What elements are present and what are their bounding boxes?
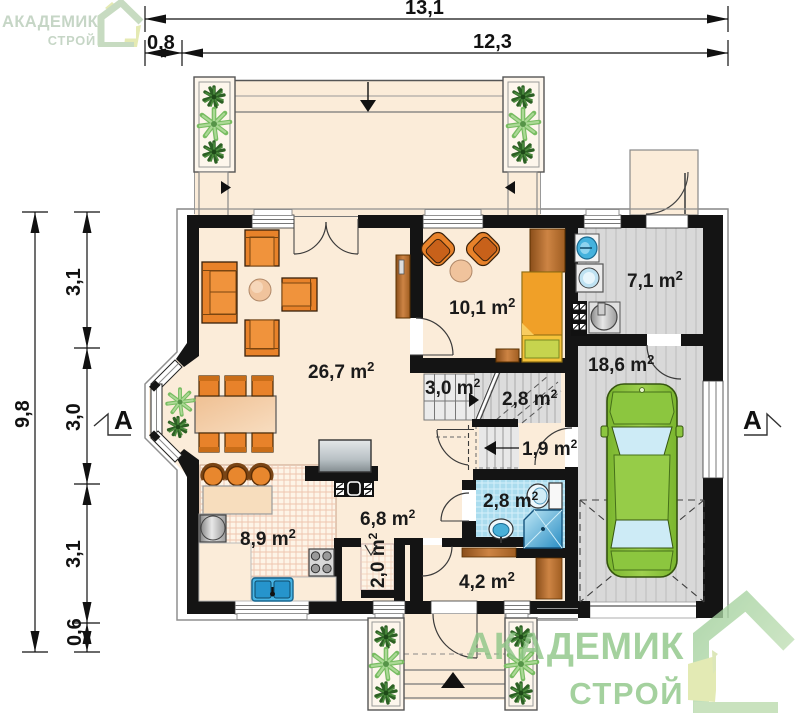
svg-text:6,8 m2: 6,8 m2 <box>360 507 416 530</box>
svg-text:0,6: 0,6 <box>64 618 86 646</box>
svg-text:СТРОЙ: СТРОЙ <box>48 33 96 48</box>
svg-text:3,0: 3,0 <box>63 403 85 431</box>
svg-text:3,1: 3,1 <box>63 540 85 568</box>
svg-text:26,7 m2: 26,7 m2 <box>308 359 374 383</box>
svg-text:10,1 m2: 10,1 m2 <box>449 295 515 319</box>
svg-text:4,2 m2: 4,2 m2 <box>459 569 515 593</box>
svg-text:9,8: 9,8 <box>12 400 34 428</box>
svg-text:A: A <box>743 405 762 435</box>
svg-text:13,1: 13,1 <box>405 0 444 19</box>
svg-text:АКАДЕМИК: АКАДЕМИК <box>2 13 99 31</box>
svg-text:2,8 m2: 2,8 m2 <box>483 489 539 512</box>
svg-text:7,1 m2: 7,1 m2 <box>627 268 683 292</box>
svg-text:0,8: 0,8 <box>147 32 175 54</box>
svg-text:2,8 m2: 2,8 m2 <box>502 387 558 410</box>
svg-text:8,9 m2: 8,9 m2 <box>240 526 296 550</box>
svg-text:3,0 m2: 3,0 m2 <box>425 376 481 399</box>
svg-text:1,9 m2: 1,9 m2 <box>522 437 578 460</box>
svg-text:A: A <box>114 405 133 435</box>
svg-text:3,1: 3,1 <box>63 268 85 296</box>
svg-text:12,3: 12,3 <box>473 31 512 53</box>
svg-text:2,0 m2: 2,0 m2 <box>366 532 389 588</box>
svg-text:18,6 m2: 18,6 m2 <box>588 352 654 376</box>
svg-text:АКАДЕМИК: АКАДЕМИК <box>466 626 684 668</box>
svg-text:СТРОЙ: СТРОЙ <box>569 675 684 711</box>
